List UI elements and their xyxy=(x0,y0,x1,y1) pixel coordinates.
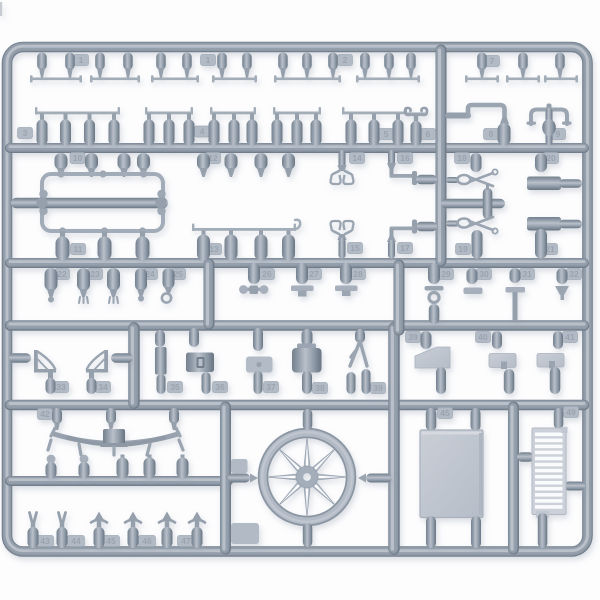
svg-text:1: 1 xyxy=(206,55,211,65)
svg-text:33: 33 xyxy=(56,382,66,392)
svg-text:30: 30 xyxy=(479,269,489,279)
svg-text:18: 18 xyxy=(457,153,467,163)
svg-text:22: 22 xyxy=(57,269,67,279)
svg-text:31: 31 xyxy=(522,269,532,279)
svg-text:38: 38 xyxy=(315,383,325,393)
svg-text:17: 17 xyxy=(400,243,410,253)
svg-text:1: 1 xyxy=(79,55,84,65)
svg-text:40: 40 xyxy=(478,332,488,342)
svg-text:14: 14 xyxy=(352,153,362,163)
svg-text:4: 4 xyxy=(200,127,205,137)
svg-text:3: 3 xyxy=(23,128,28,138)
svg-text:37: 37 xyxy=(266,382,276,392)
svg-text:7: 7 xyxy=(490,56,495,66)
svg-text:25: 25 xyxy=(173,269,183,279)
svg-text:6: 6 xyxy=(426,129,431,139)
svg-text:43: 43 xyxy=(40,536,50,546)
svg-text:10: 10 xyxy=(73,153,83,163)
svg-text:8: 8 xyxy=(489,129,494,139)
svg-text:15: 15 xyxy=(350,243,360,253)
svg-text:9: 9 xyxy=(556,129,561,139)
svg-text:29: 29 xyxy=(441,269,451,279)
svg-text:11: 11 xyxy=(74,244,83,254)
svg-text:49: 49 xyxy=(566,407,576,417)
svg-text:19: 19 xyxy=(458,244,468,254)
svg-text:32: 32 xyxy=(569,269,579,279)
svg-text:2: 2 xyxy=(343,55,348,65)
svg-text:20: 20 xyxy=(546,153,556,163)
svg-text:45: 45 xyxy=(106,536,116,546)
svg-text:39: 39 xyxy=(373,383,383,393)
svg-text:41: 41 xyxy=(565,332,575,342)
svg-text:27: 27 xyxy=(309,269,319,279)
svg-text:23: 23 xyxy=(90,269,100,279)
svg-text:5: 5 xyxy=(384,129,389,139)
svg-text:34: 34 xyxy=(98,382,108,392)
svg-text:35: 35 xyxy=(170,382,180,392)
svg-text:42: 42 xyxy=(40,409,50,419)
svg-text:36: 36 xyxy=(215,382,225,392)
svg-text:16: 16 xyxy=(400,153,410,163)
svg-text:45: 45 xyxy=(440,408,450,418)
svg-text:46: 46 xyxy=(142,536,152,546)
svg-text:47: 47 xyxy=(181,536,191,546)
svg-text:28: 28 xyxy=(353,269,363,279)
svg-text:44: 44 xyxy=(71,536,81,546)
svg-text:13: 13 xyxy=(209,244,219,254)
svg-text:26: 26 xyxy=(262,269,272,279)
svg-text:39: 39 xyxy=(408,332,418,342)
